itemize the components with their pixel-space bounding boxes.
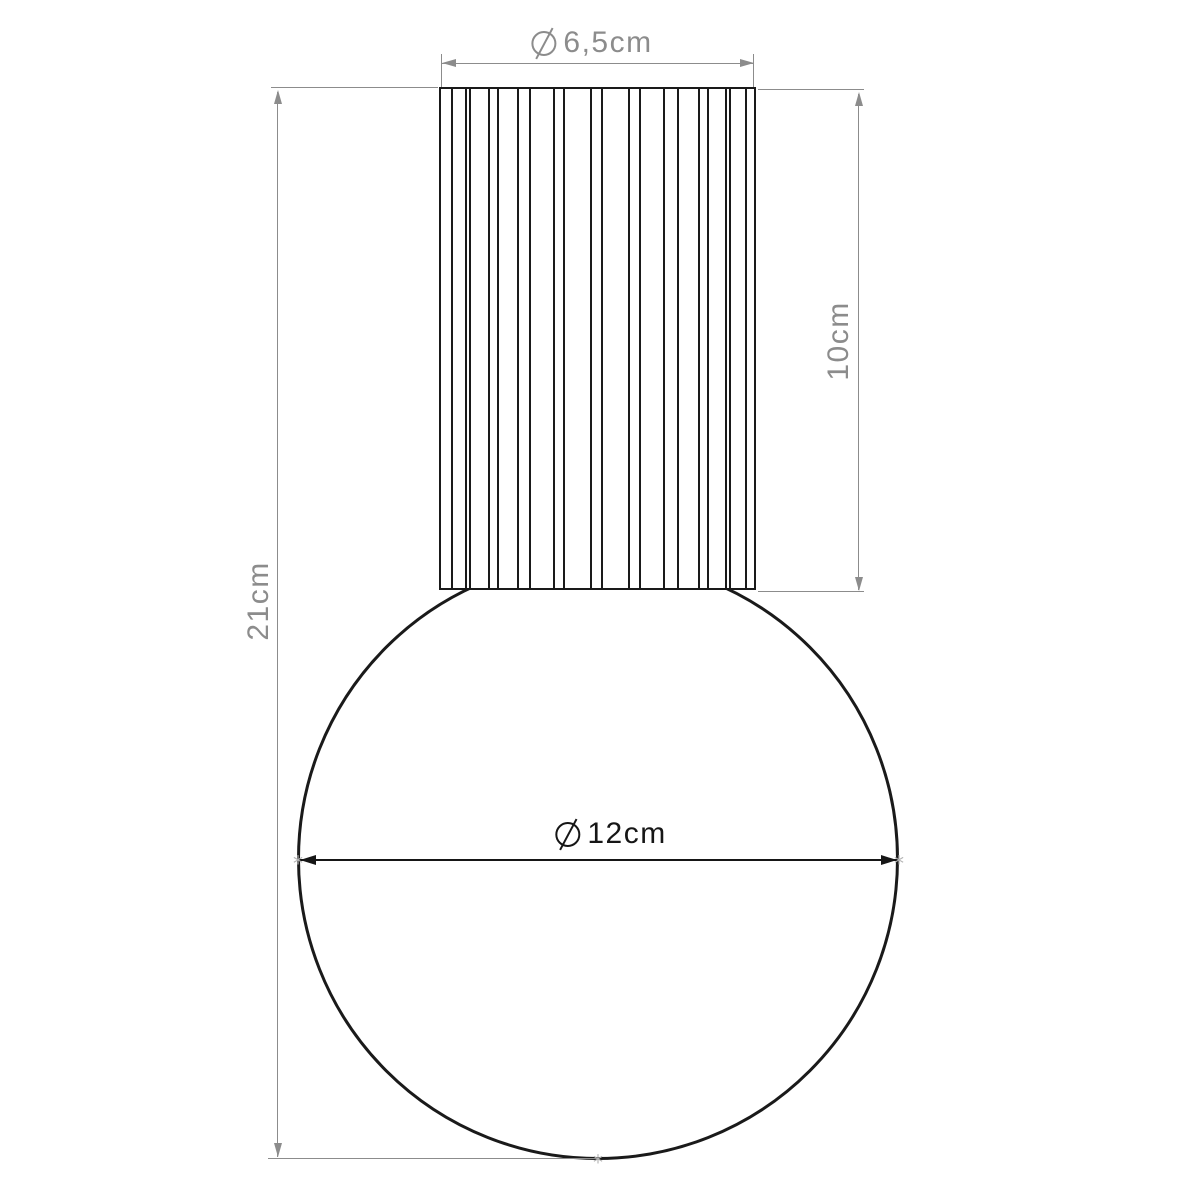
arrowhead-up-icon [274,90,282,104]
arrowhead-down-icon [855,577,863,591]
flute-line [563,89,565,588]
flute-line [465,89,467,588]
dimension-text: 21cm [242,561,276,640]
arrowhead-right-icon [740,59,754,67]
flute-line [729,89,731,588]
lamp-fluted-cylinder [439,87,756,590]
flute-line [601,89,603,588]
flute-line [529,89,531,588]
flute-line [488,89,490,588]
flute-line [725,89,727,588]
arrowhead-up-icon [855,92,863,106]
flute-line [451,89,453,588]
flute-line [745,89,747,588]
dimension-label-cylinder-height: 10cm [822,301,856,380]
dimension-text: 12cm [587,817,666,851]
dimension-line [277,92,278,1157]
technical-drawing-canvas: 6,5cm 10cm 21cm 12cm * * * [0,0,1200,1200]
flute-line [663,89,665,588]
extension-line-top [758,89,864,90]
flute-line [628,89,630,588]
dimension-line [300,859,897,861]
arrowhead-left-icon [442,59,456,67]
flute-line [698,89,700,588]
dimension-label-total-height: 21cm [242,561,276,640]
flute-line [497,89,499,588]
extension-line-bottom [268,1158,598,1159]
dimension-line [858,94,859,590]
dimension-label-globe-diameter: 12cm [555,817,666,851]
flute-line [590,89,592,588]
flute-line [517,89,519,588]
flute-line [707,89,709,588]
dimension-text: 10cm [822,301,856,380]
endpoint-marker-icon: * [293,853,303,873]
flute-line [469,89,471,588]
extension-line-bottom [758,591,864,592]
dimension-line [442,63,754,64]
diameter-icon [531,31,556,56]
extension-line-top [271,87,438,88]
dimension-text: 6,5cm [563,26,652,60]
flute-line [639,89,641,588]
endpoint-marker-icon: * [593,1152,603,1172]
endpoint-marker-icon: * [894,853,904,873]
diameter-icon [555,822,580,847]
dimension-label-cylinder-diameter: 6,5cm [531,26,652,60]
flute-line [677,89,679,588]
arrowhead-down-icon [274,1143,282,1157]
flute-line [553,89,555,588]
